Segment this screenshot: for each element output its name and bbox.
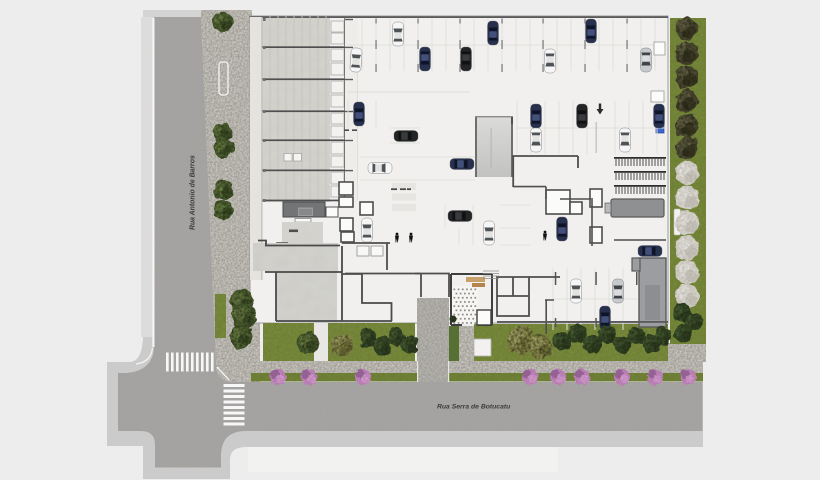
svg-text:Rua Serra de Botucatu: Rua Serra de Botucatu	[437, 404, 511, 411]
svg-text:Rua Antonio de Barros: Rua Antonio de Barros	[190, 155, 197, 230]
